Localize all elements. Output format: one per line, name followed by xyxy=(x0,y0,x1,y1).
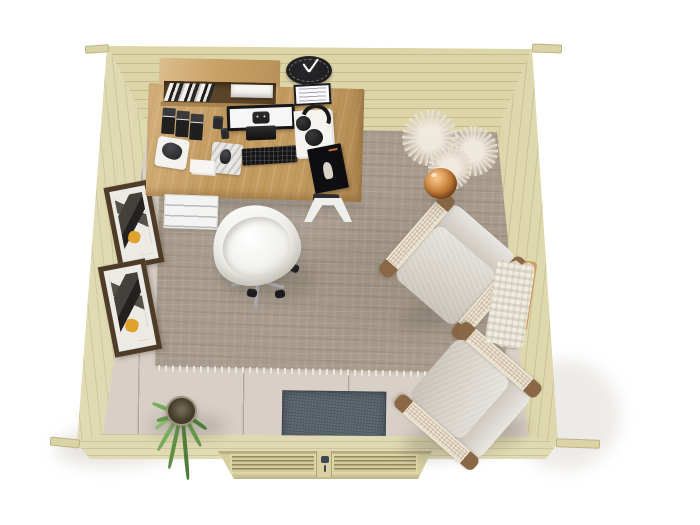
door-lock xyxy=(324,465,326,472)
double-louvered-door xyxy=(204,451,446,479)
magazine-file xyxy=(161,108,176,135)
magazine-file xyxy=(189,114,204,141)
log-end-top-right xyxy=(532,43,562,53)
wall-shelf xyxy=(159,58,281,109)
log-end-bottom-right xyxy=(556,438,600,449)
monitor-stand xyxy=(246,125,276,140)
magazine-file xyxy=(175,111,190,138)
monitor-screen-graphic xyxy=(252,111,269,124)
desk-drawer-unit xyxy=(163,194,218,230)
wall-clock xyxy=(286,56,332,85)
headphones-earcup xyxy=(296,116,311,131)
shelf-books xyxy=(164,83,216,102)
log-end-bottom-left xyxy=(50,436,81,448)
amber-glass-vase xyxy=(424,168,457,199)
frame-art-abstract xyxy=(109,271,151,344)
clock-center xyxy=(308,69,311,72)
frame-art-abstract xyxy=(115,192,154,258)
note-cards xyxy=(190,159,215,174)
chair-caster xyxy=(246,288,257,298)
plant-pot xyxy=(166,396,197,426)
door-louver-left xyxy=(230,454,316,474)
headphones-earcup xyxy=(305,129,323,146)
memo-board xyxy=(293,83,331,106)
chair-caster xyxy=(274,289,285,299)
door-handle xyxy=(321,456,329,463)
cabin-top-view-render xyxy=(0,0,700,525)
shelf-paper-tray xyxy=(231,84,273,98)
log-end-top-left xyxy=(85,44,109,54)
doormat xyxy=(282,390,387,441)
door-louver-right xyxy=(332,454,418,474)
door-center-stile xyxy=(316,451,332,477)
